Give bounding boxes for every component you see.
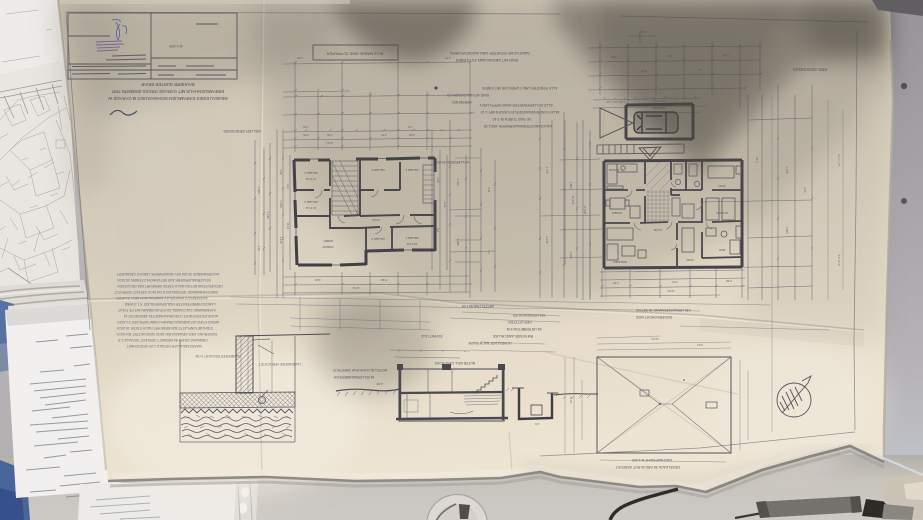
svg-text:RM KESSELANSCHLUSS: RM KESSELANSCHLUSS [492,334,533,338]
svg-text:12.01: 12.01 [667,289,675,293]
svg-text:MASSSTAB ALLER DETAILS 1:20 GE: MASSSTAB ALLER DETAILS 1:20 GEZEICHNET [127,344,202,348]
svg-text:KLEMMWAND CALCIUMSIL-DICHTUNGS: KLEMMWAND CALCIUMSIL-DICHTUNGSBAHN MIT P… [118,308,216,312]
svg-text:DACHAUFSICHT M 1:100: DACHAUFSICHT M 1:100 [632,458,672,462]
svg-text:14.01: 14.01 [651,337,659,341]
svg-text:4.26: 4.26 [315,278,321,282]
svg-text:KELLERAUSSENWAND 30 BETON: KELLERAUSSENWAND 30 BETON [635,308,690,312]
svg-text:DECKEN STAHLBETON NACH STATIK: DECKEN STAHLBETON NACH STATIK BEWEHRT B2… [117,284,223,288]
svg-text:DRANUNG DN100 IM KIESBETT VERL: DRANUNG DN100 IM KIESBETT VERLEGT GEFALL… [118,338,207,342]
svg-text:2.49: 2.49 [279,169,283,175]
svg-text:DER LETZTEN: DER LETZTEN [508,320,532,324]
svg-text:SICKERUNG KIES GEWASCHEN 16/32: SICKERUNG KIES GEWASCHEN 16/32 GESCHUTTE… [116,332,217,336]
svg-text:2.0: 2.0 [535,422,539,426]
svg-text:KELLERMAUERWERK AUS BETONHOHLS: KELLERMAUERWERK AUS BETONHOHLSTEINEN 30 … [117,278,211,282]
svg-text:VORRAT: VORRAT [322,245,334,249]
svg-text:SICKERSCHICHT KIES: SICKERSCHICHT KIES [635,315,672,319]
svg-text:2.635: 2.635 [279,201,283,208]
svg-text:NUTZB KELL GESCHOSS: NUTZB KELL GESCHOSS [434,361,475,365]
svg-text:LAGENWEISE VERDICHTET: LAGENWEISE VERDICHTET [259,362,301,366]
svg-text:11.01: 11.01 [569,396,573,404]
svg-text:SAUBERKEITSSCHICHT 5 CM: SAUBERKEITSSCHICHT 5 CM [195,354,240,358]
svg-text:LANGSCHIEBEFENSTER ISOLIERVERG: LANGSCHIEBEFENSTER ISOLIERVERGLAST K 1.3… [124,302,215,306]
svg-text:ZWISCHENWANDE GIPSDIELEN 8 CM: ZWISCHENWANDE GIPSDIELEN 8 CM DICK GEFUG… [114,290,218,294]
svg-text:AUSSENPUTZ KRATZPUTZ MINERALIS: AUSSENPUTZ KRATZPUTZ MINERALISCH HELL 2-… [116,296,208,300]
svg-text:ABDICHTUNG BITUMENDACHBAHN 0.5: ABDICHTUNG BITUMENDACHBAHN 0.5MM VERKLEB… [117,320,219,324]
svg-text:STAHLBETONPLATTE B25 BEWEHRT N: STAHLBETONPLATTE B25 BEWEHRT NACH STATIK… [116,326,213,330]
svg-text:AUSSENWANDE 30 DM KSV MAUERWER: AUSSENWANDE 30 DM KSV MAUERWERK 1800 KG … [117,272,220,276]
svg-text:11.01: 11.01 [286,223,290,230]
svg-text:BAD: BAD [718,248,725,252]
svg-text:ZIEGELDACH 38 GRD IN ROT GEDEC: ZIEGELDACH 38 GRD IN ROT GEDECKT [616,465,681,469]
svg-text:1.24: 1.24 [286,183,290,189]
svg-text:HOBBY: HOBBY [323,239,333,243]
svg-text:2.365: 2.365 [257,187,261,194]
svg-text:4.135: 4.135 [279,237,283,244]
svg-text:IM UNTERBETON 5 W: IM UNTERBETON 5 W [506,327,542,331]
svg-text:4.26: 4.26 [257,245,261,251]
svg-text:10.5 m2: 10.5 m2 [306,206,317,210]
svg-text:3.51: 3.51 [672,280,678,284]
svg-text:8.61: 8.61 [697,343,703,347]
svg-text:AUSGLEICHSCHICHT LOSCHKALKMORT: AUSGLEICHSCHICHT LOSCHKALKMORTEL BEIDSEI… [124,314,219,318]
svg-text:KELLER GESCHOSS: KELLER GESCHOSS [223,129,261,133]
svg-text:5.90: 5.90 [381,278,387,282]
svg-text:KIND: KIND [686,258,694,262]
svg-text:2.86: 2.86 [726,279,732,283]
svg-text:1.135: 1.135 [266,212,270,219]
